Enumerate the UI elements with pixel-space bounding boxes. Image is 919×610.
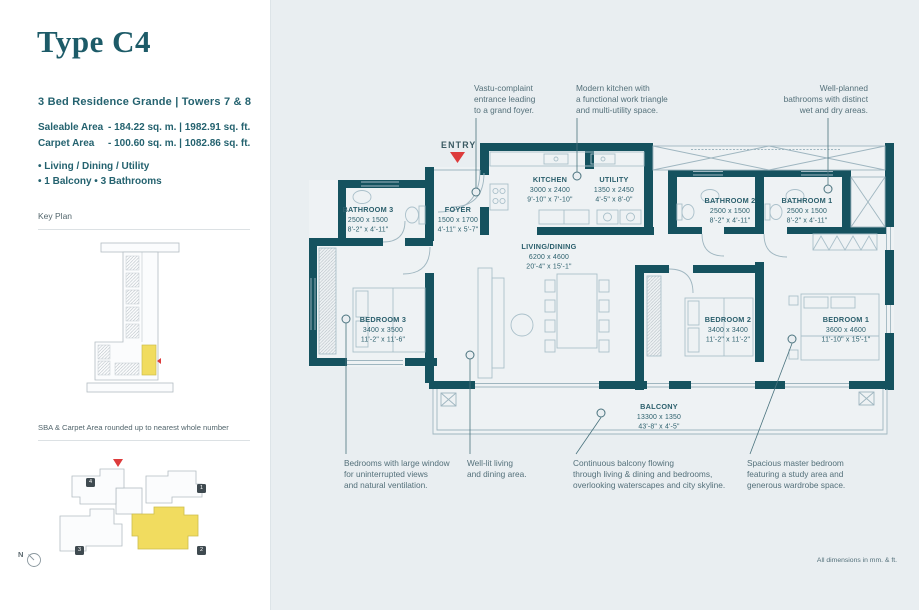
residence-subtitle: 3 Bed Residence Grande | Towers 7 & 8: [38, 96, 251, 108]
keyplan-podium: [87, 383, 173, 392]
leader-dot: [472, 188, 480, 196]
room-label-bedroom-1: BEDROOM 13600 x 460011'-10" x 15'-1": [822, 315, 871, 344]
annotation-note: Modern kitchen witha functional work tri…: [576, 83, 668, 115]
annotation-note: Vastu-complaintentrance leadingto a gran…: [474, 83, 536, 115]
unit-badge-4: 4: [86, 478, 95, 487]
divider: [38, 440, 250, 441]
leader-dot: [466, 351, 474, 359]
feature-item: • Living / Dining / Utility: [38, 159, 162, 174]
site-unit-1: [146, 471, 202, 503]
north-label: N: [18, 550, 23, 559]
entry-marker: ENTRY: [441, 140, 477, 163]
sidebar: Type C4 3 Bed Residence Grande | Towers …: [0, 0, 270, 610]
floorplan-panel: BATHROOM 32500 x 15008'-2" x 4'-11"FOYER…: [270, 0, 919, 610]
key-plan-heading: Key Plan: [38, 211, 72, 221]
carpet-area-value: - 100.60 sq. m. | 1082.86 sq. ft.: [108, 136, 250, 152]
annotation-note: Continuous balcony flowingthrough living…: [573, 458, 725, 490]
keyplan-highlighted-unit: [142, 345, 156, 375]
room-label-living-dining: LIVING/DINING6200 x 460020'-4" x 15'-1": [521, 242, 576, 271]
saleable-area-value: - 184.22 sq. m. | 1982.91 sq. ft.: [108, 120, 250, 136]
sba-note: SBA & Carpet Area rounded up to nearest …: [38, 423, 229, 432]
page-title: Type C4: [37, 24, 151, 60]
room-label-utility: UTILITY1350 x 24504'-5" x 8'-0": [594, 175, 634, 204]
carpet-area-row: Carpet Area - 100.60 sq. m. | 1082.86 sq…: [38, 136, 250, 152]
unit-badge-3: 3: [75, 546, 84, 555]
site-entry-arrow-icon: [113, 459, 123, 467]
saleable-area-row: Saleable Area - 184.22 sq. m. | 1982.91 …: [38, 120, 250, 136]
room-label-bedroom-2: BEDROOM 23400 x 340011'-2" x 11'-2": [705, 315, 751, 344]
divider: [38, 229, 250, 230]
room-label-bathroom-1: BATHROOM 12500 x 15008'-2" x 4'-11": [781, 196, 832, 225]
leader-dot: [573, 172, 581, 180]
entry-arrow-icon: [450, 152, 465, 163]
room-label-bathroom-3: BATHROOM 32500 x 15008'-2" x 4'-11": [342, 205, 393, 234]
dimensions-note: All dimensions in mm. & ft.: [817, 557, 897, 564]
annotation-note: Spacious master bedroomfeaturing a study…: [747, 458, 845, 490]
keyplan-top-bar: [101, 243, 179, 252]
leader-dot: [824, 185, 832, 193]
entry-label: ENTRY: [441, 140, 477, 150]
floorplan: BATHROOM 32500 x 15008'-2" x 4'-11"FOYER…: [271, 0, 919, 610]
unit-badge-2: 2: [197, 546, 206, 555]
site-unit-4: [72, 469, 124, 504]
leader-dot: [342, 315, 350, 323]
brochure-page: Type C4 3 Bed Residence Grande | Towers …: [0, 0, 919, 610]
saleable-area-label: Saleable Area: [38, 120, 108, 136]
feature-item: • 1 Balcony • 3 Bathrooms: [38, 174, 162, 189]
unit-badge-1: 1: [197, 484, 206, 493]
leader-dot: [597, 409, 605, 417]
room-label-bathroom-2: BATHROOM 22500 x 15008'-2" x 4'-11": [704, 196, 755, 225]
annotation-note: Well-plannedbathrooms with distinctwet a…: [784, 83, 869, 115]
carpet-area-label: Carpet Area: [38, 136, 108, 152]
room-label-kitchen: KITCHEN3000 x 24009'-10" x 7'-10": [527, 175, 573, 204]
annotation-note: Well-lit livingand dining area.: [467, 458, 527, 479]
feature-list: • Living / Dining / Utility • 1 Balcony …: [38, 159, 162, 189]
room-label-balcony: BALCONY13300 x 135043'-8" x 4'-5": [637, 402, 681, 431]
site-core: [116, 488, 142, 514]
leader-dot: [788, 335, 796, 343]
key-plan-diagram: [85, 241, 195, 411]
site-unit-3: [60, 509, 122, 551]
room-label-bedroom-3: BEDROOM 33400 x 350011'-2" x 11'-6": [360, 315, 406, 344]
compass-icon: [24, 550, 42, 568]
annotation-note: Bedrooms with large windowfor uninterrup…: [344, 458, 451, 490]
north-indicator: N: [18, 550, 42, 568]
area-facts: Saleable Area - 184.22 sq. m. | 1982.91 …: [38, 120, 250, 152]
